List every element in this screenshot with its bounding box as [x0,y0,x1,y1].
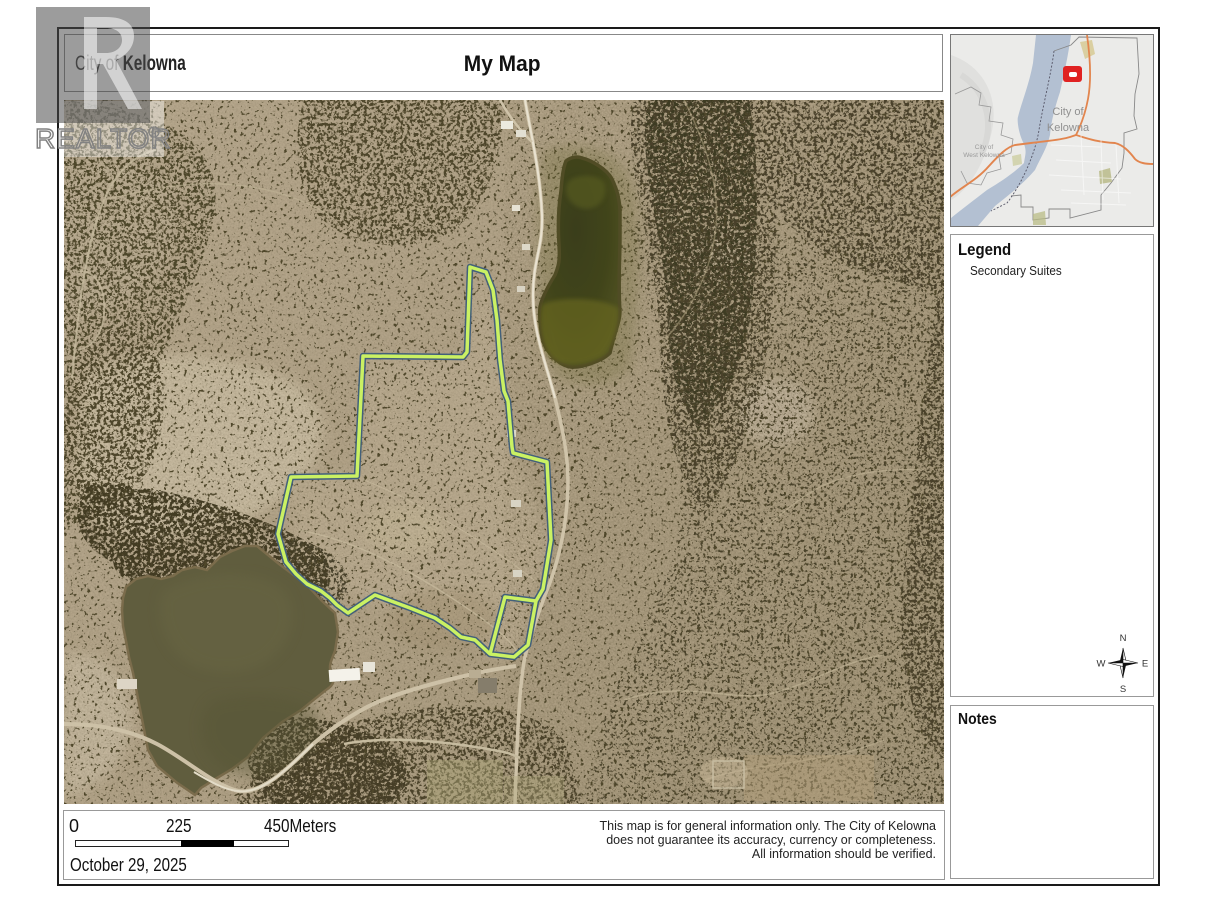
svg-text:S: S [1120,684,1126,695]
svg-text:City of: City of [1052,106,1084,118]
svg-text:E: E [1142,659,1148,670]
svg-text:Kelowna: Kelowna [1047,122,1090,134]
svg-text:City of: City of [975,144,994,151]
svg-text:R: R [151,129,157,138]
svg-text:West Kelowna: West Kelowna [963,152,1005,159]
svg-text:N: N [1120,633,1127,644]
svg-text:W: W [1097,659,1106,670]
